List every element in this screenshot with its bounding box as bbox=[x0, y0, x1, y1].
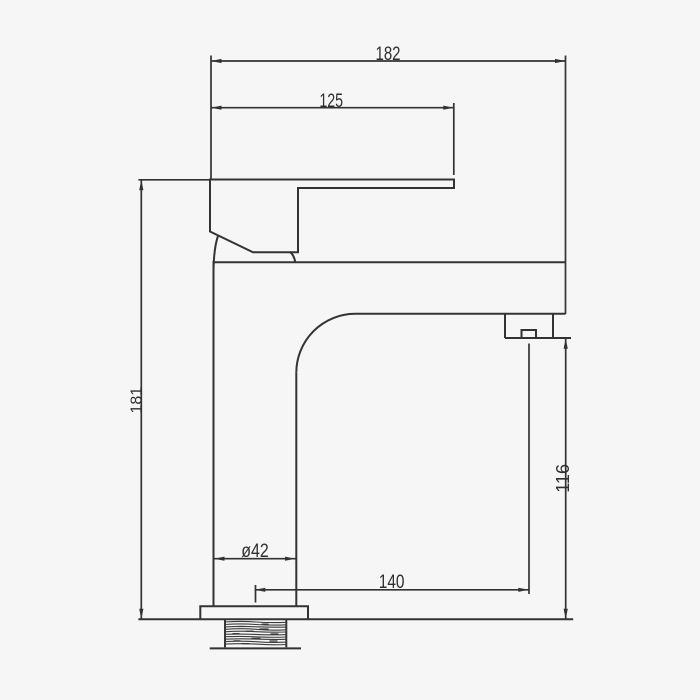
svg-text:181: 181 bbox=[129, 387, 146, 414]
svg-text:116: 116 bbox=[553, 464, 573, 493]
svg-text:ø42: ø42 bbox=[241, 539, 269, 561]
svg-text:125: 125 bbox=[319, 90, 343, 112]
svg-text:182: 182 bbox=[375, 42, 400, 64]
svg-text:140: 140 bbox=[379, 570, 405, 592]
